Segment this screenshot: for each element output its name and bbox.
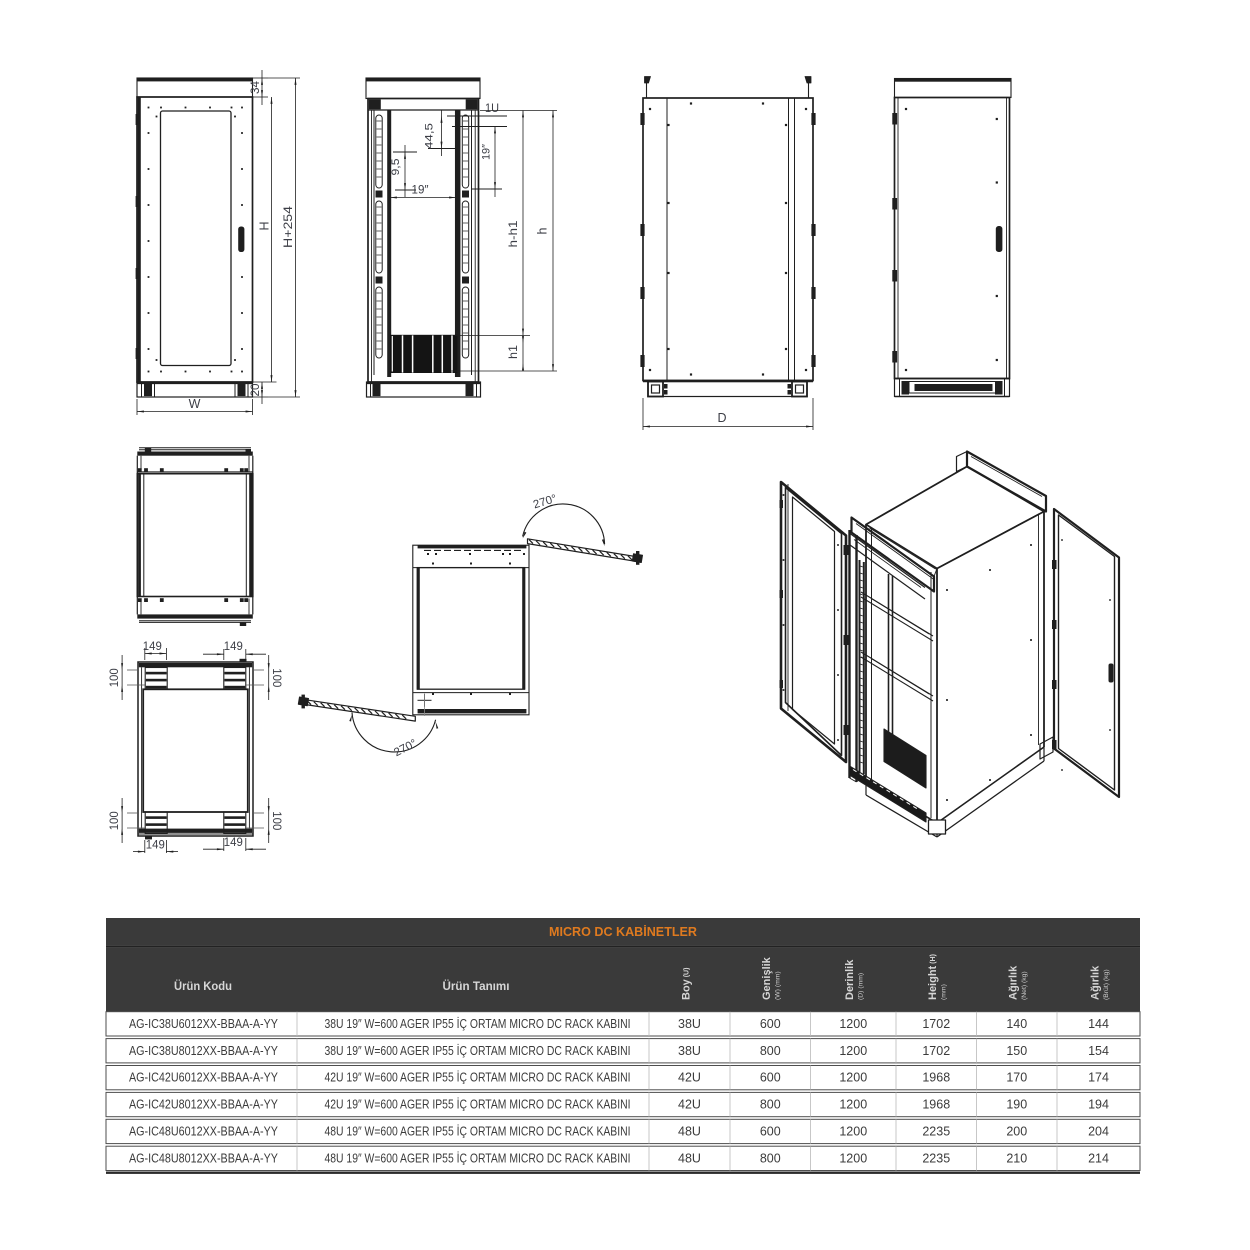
svg-text:140: 140 xyxy=(1006,1017,1027,1031)
svg-text:1200: 1200 xyxy=(839,1098,867,1112)
svg-text:150: 150 xyxy=(1006,1044,1027,1058)
svg-text:38U 19″ W=600 AGER IP55 İÇ ORT: 38U 19″ W=600 AGER IP55 İÇ ORTAM MICRO D… xyxy=(325,1017,631,1031)
svg-text:149: 149 xyxy=(146,838,165,852)
svg-text:1968: 1968 xyxy=(922,1098,950,1112)
svg-text:20: 20 xyxy=(250,384,262,397)
svg-text:100: 100 xyxy=(270,668,284,687)
svg-text:149: 149 xyxy=(224,835,243,849)
svg-text:AG-IC48U6012XX-BBAA-A-YY: AG-IC48U6012XX-BBAA-A-YY xyxy=(129,1125,279,1139)
svg-text:149: 149 xyxy=(224,639,243,653)
svg-text:1U: 1U xyxy=(485,103,499,115)
svg-text:AG-IC42U6012XX-BBAA-A-YY: AG-IC42U6012XX-BBAA-A-YY xyxy=(129,1071,279,1085)
svg-text:600: 600 xyxy=(760,1125,781,1139)
svg-text:2235: 2235 xyxy=(922,1151,950,1165)
svg-text:42U: 42U xyxy=(678,1071,701,1085)
svg-text:h: h xyxy=(536,227,550,234)
svg-text:48U 19″ W=600 AGER IP55 İÇ ORT: 48U 19″ W=600 AGER IP55 İÇ ORTAM MICRO D… xyxy=(325,1151,631,1165)
svg-text:48U 19″ W=600 AGER IP55 İÇ ORT: 48U 19″ W=600 AGER IP55 İÇ ORTAM MICRO D… xyxy=(325,1125,631,1139)
svg-text:Ürün Tanımı: Ürün Tanımı xyxy=(443,978,510,993)
svg-text:H: H xyxy=(257,221,271,230)
svg-text:144: 144 xyxy=(1088,1017,1109,1031)
svg-text:Ağırlık: Ağırlık xyxy=(1008,965,1020,1000)
svg-text:42U: 42U xyxy=(678,1098,701,1112)
svg-text:1702: 1702 xyxy=(922,1017,950,1031)
svg-text:200: 200 xyxy=(1006,1125,1027,1139)
svg-text:(D) (mm): (D) (mm) xyxy=(858,973,865,1000)
svg-text:48U: 48U xyxy=(678,1125,701,1139)
svg-text:W: W xyxy=(189,397,201,411)
svg-text:1200: 1200 xyxy=(839,1071,867,1085)
svg-text:149: 149 xyxy=(143,639,162,653)
svg-text:H+254: H+254 xyxy=(281,206,295,248)
svg-text:(W) (mm): (W) (mm) xyxy=(775,971,782,1000)
svg-text:270°: 270° xyxy=(392,738,419,760)
svg-text:154: 154 xyxy=(1088,1044,1109,1058)
svg-text:190: 190 xyxy=(1006,1098,1027,1112)
svg-text:1968: 1968 xyxy=(922,1071,950,1085)
svg-text:MICRO DC KABİNETLER: MICRO DC KABİNETLER xyxy=(549,924,698,939)
svg-text:(Net) (kg): (Net) (kg) xyxy=(1021,971,1028,1000)
svg-text:194: 194 xyxy=(1088,1098,1109,1112)
svg-text:174: 174 xyxy=(1088,1071,1109,1085)
svg-text:600: 600 xyxy=(760,1017,781,1031)
svg-text:1200: 1200 xyxy=(839,1044,867,1058)
svg-text:210: 210 xyxy=(1006,1151,1027,1165)
svg-text:AG-IC38U8012XX-BBAA-A-YY: AG-IC38U8012XX-BBAA-A-YY xyxy=(129,1044,279,1058)
svg-text:1200: 1200 xyxy=(839,1151,867,1165)
svg-text:600: 600 xyxy=(760,1071,781,1085)
svg-text:100: 100 xyxy=(270,811,284,830)
svg-text:38U 19″ W=600 AGER IP55 İÇ ORT: 38U 19″ W=600 AGER IP55 İÇ ORTAM MICRO D… xyxy=(325,1044,631,1058)
svg-text:48U: 48U xyxy=(678,1151,701,1165)
svg-text:Ürün Kodu: Ürün Kodu xyxy=(174,978,232,993)
svg-text:19″: 19″ xyxy=(480,144,492,160)
svg-text:Derinlik: Derinlik xyxy=(844,959,856,1000)
svg-text:Genişlik: Genişlik xyxy=(761,956,773,1000)
svg-text:2235: 2235 xyxy=(922,1125,950,1139)
svg-text:42U 19″ W=600 AGER IP55 İÇ ORT: 42U 19″ W=600 AGER IP55 İÇ ORTAM MICRO D… xyxy=(325,1098,631,1112)
svg-text:(mm): (mm) xyxy=(941,984,948,1000)
svg-text:44,5: 44,5 xyxy=(423,123,435,149)
svg-text:h1: h1 xyxy=(506,345,520,359)
svg-text:42U 19″ W=600 AGER IP55 İÇ ORT: 42U 19″ W=600 AGER IP55 İÇ ORTAM MICRO D… xyxy=(325,1071,631,1085)
svg-text:38U: 38U xyxy=(678,1044,701,1058)
svg-text:204: 204 xyxy=(1088,1125,1109,1139)
svg-text:800: 800 xyxy=(760,1098,781,1112)
svg-text:D: D xyxy=(717,411,726,425)
svg-text:AG-IC42U8012XX-BBAA-A-YY: AG-IC42U8012XX-BBAA-A-YY xyxy=(129,1098,279,1112)
svg-text:19″: 19″ xyxy=(412,185,429,197)
svg-text:Ağırlık: Ağırlık xyxy=(1090,965,1102,1000)
svg-text:1702: 1702 xyxy=(922,1044,950,1058)
svg-text:AG-IC48U8012XX-BBAA-A-YY: AG-IC48U8012XX-BBAA-A-YY xyxy=(129,1151,279,1165)
svg-text:800: 800 xyxy=(760,1151,781,1165)
svg-text:(Brüt) (kg): (Brüt) (kg) xyxy=(1103,969,1110,1000)
svg-text:100: 100 xyxy=(107,668,121,687)
svg-text:34: 34 xyxy=(250,80,262,94)
svg-text:100: 100 xyxy=(107,811,121,830)
svg-text:AG-IC38U6012XX-BBAA-A-YY: AG-IC38U6012XX-BBAA-A-YY xyxy=(129,1017,279,1031)
svg-text:38U: 38U xyxy=(678,1017,701,1031)
svg-text:1200: 1200 xyxy=(839,1017,867,1031)
svg-text:h-h1: h-h1 xyxy=(506,220,520,247)
svg-text:800: 800 xyxy=(760,1044,781,1058)
svg-text:9,5: 9,5 xyxy=(390,159,402,176)
svg-text:214: 214 xyxy=(1088,1151,1109,1165)
svg-text:170: 170 xyxy=(1006,1071,1027,1085)
svg-text:1200: 1200 xyxy=(839,1125,867,1139)
